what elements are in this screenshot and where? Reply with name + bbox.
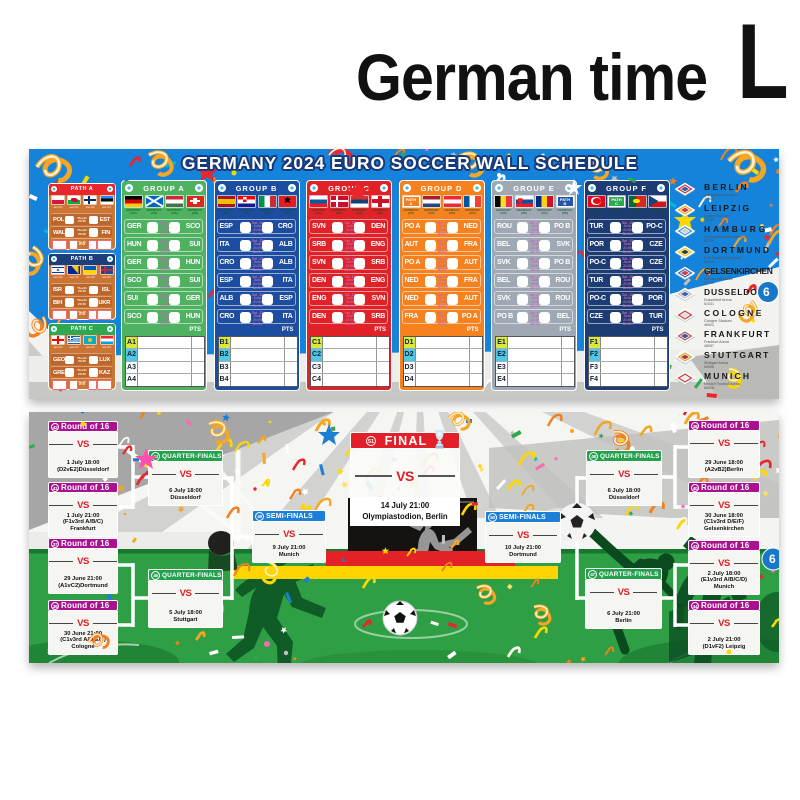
svg-text:6: 6 [769, 552, 776, 566]
